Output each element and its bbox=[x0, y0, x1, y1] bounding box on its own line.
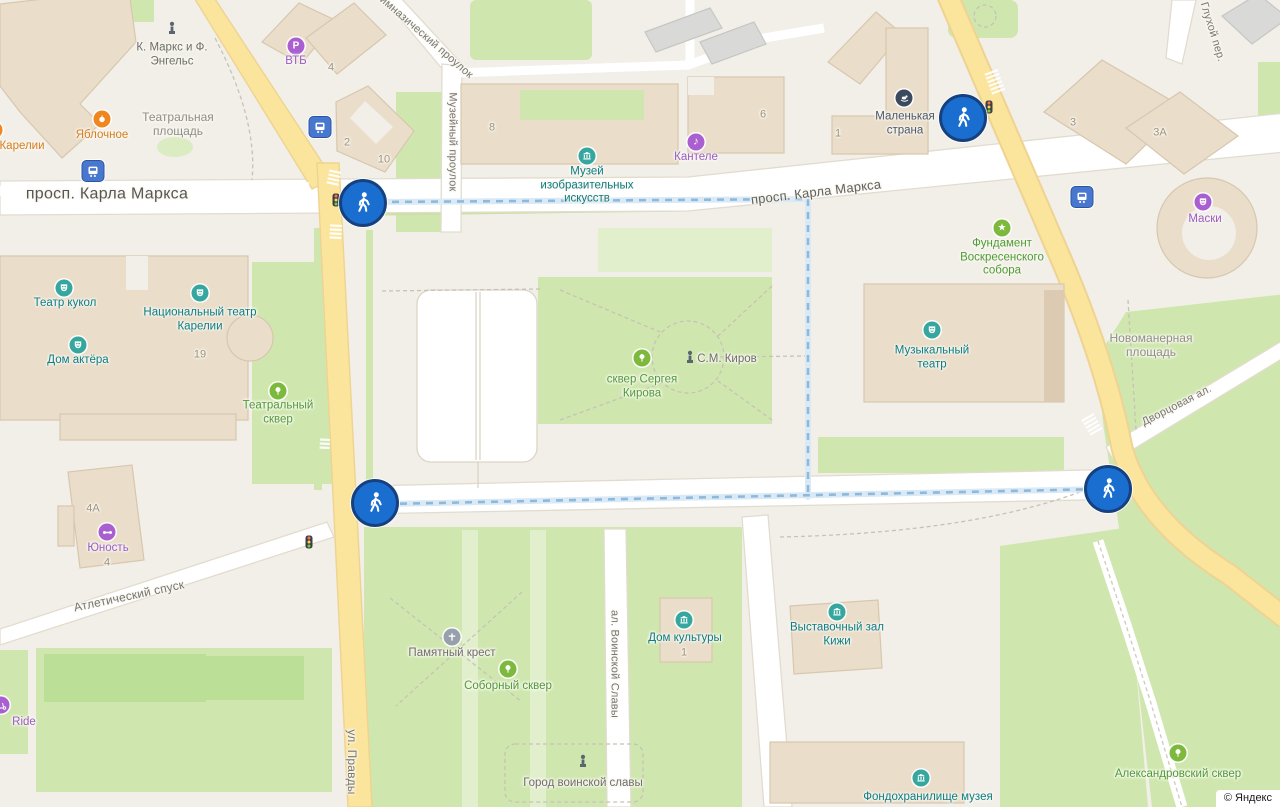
map-canvas[interactable]: просп. Карла Маркса просп. Карла Маркса … bbox=[0, 0, 1280, 807]
pedestrian-crossing-icon[interactable] bbox=[339, 179, 387, 227]
theater-icon[interactable] bbox=[192, 285, 209, 302]
tram-stop-icon[interactable] bbox=[82, 160, 105, 182]
building-nat-teatr bbox=[0, 256, 248, 420]
map-base-layer bbox=[0, 0, 1280, 807]
kids-center-icon[interactable] bbox=[896, 90, 913, 107]
tram-stop-icon[interactable] bbox=[309, 116, 332, 138]
parking-lot bbox=[417, 290, 537, 488]
museum-icon[interactable] bbox=[579, 148, 596, 165]
theater-icon[interactable] bbox=[70, 337, 87, 354]
building-topleft-complex bbox=[0, 0, 136, 158]
star-icon[interactable]: ★ bbox=[994, 220, 1011, 237]
road-glukhoy bbox=[1166, 0, 1196, 64]
museum-icon[interactable] bbox=[829, 604, 846, 621]
theater-mask-icon[interactable] bbox=[1195, 194, 1212, 211]
note-glyph: ♪ bbox=[693, 137, 699, 148]
museum-icon[interactable] bbox=[913, 770, 930, 787]
theater-icon[interactable] bbox=[924, 322, 941, 339]
sports-icon[interactable] bbox=[99, 524, 116, 541]
pedestrian-crossing-icon[interactable] bbox=[1084, 465, 1132, 513]
park-bottom-right-field bbox=[1000, 528, 1148, 807]
building-yunost bbox=[68, 465, 144, 568]
monument-statue-icon[interactable] bbox=[685, 350, 695, 369]
pedestrian-crossing-icon[interactable] bbox=[939, 94, 987, 142]
park-kirova-lawn-north bbox=[598, 228, 772, 272]
tram-stop-icon[interactable] bbox=[1071, 186, 1094, 208]
theater-icon[interactable] bbox=[56, 280, 73, 297]
park-tree-icon[interactable] bbox=[500, 661, 517, 678]
building-dom-kultury bbox=[660, 598, 712, 662]
park-tree-icon[interactable] bbox=[270, 383, 287, 400]
park-kirova-main bbox=[538, 277, 772, 424]
monument-statue-icon[interactable] bbox=[578, 754, 588, 773]
park-mid-right-strip bbox=[818, 437, 1064, 473]
parking-icon[interactable]: P bbox=[288, 38, 305, 55]
museum-icon[interactable] bbox=[676, 612, 693, 629]
green-ellipse-plaza bbox=[157, 137, 193, 157]
road-voinskoy-slavy bbox=[604, 529, 631, 807]
traffic-light-icon bbox=[986, 101, 993, 114]
park-soborny bbox=[364, 527, 742, 807]
cafe-icon[interactable] bbox=[94, 111, 111, 128]
attribution[interactable]: © Яндекс bbox=[1216, 790, 1280, 807]
park-top-center bbox=[470, 0, 592, 60]
building-gray-tr bbox=[1222, 0, 1280, 44]
monument-statue-icon[interactable] bbox=[167, 21, 177, 40]
building-fond bbox=[770, 742, 964, 803]
memorial-cross-icon[interactable] bbox=[444, 629, 461, 646]
park-tree-icon[interactable] bbox=[634, 350, 651, 367]
star-glyph: ★ bbox=[998, 223, 1007, 233]
road-muzeiny bbox=[441, 64, 462, 232]
pedestrian-crossing-icon[interactable] bbox=[351, 479, 399, 527]
traffic-light-icon bbox=[306, 536, 313, 549]
building-muz-teatr bbox=[864, 284, 1064, 402]
music-note-icon[interactable]: ♪ bbox=[688, 134, 705, 151]
road-atletichesky bbox=[0, 522, 334, 645]
parking-glyph: P bbox=[293, 41, 300, 51]
park-tree-icon[interactable] bbox=[1170, 745, 1187, 762]
